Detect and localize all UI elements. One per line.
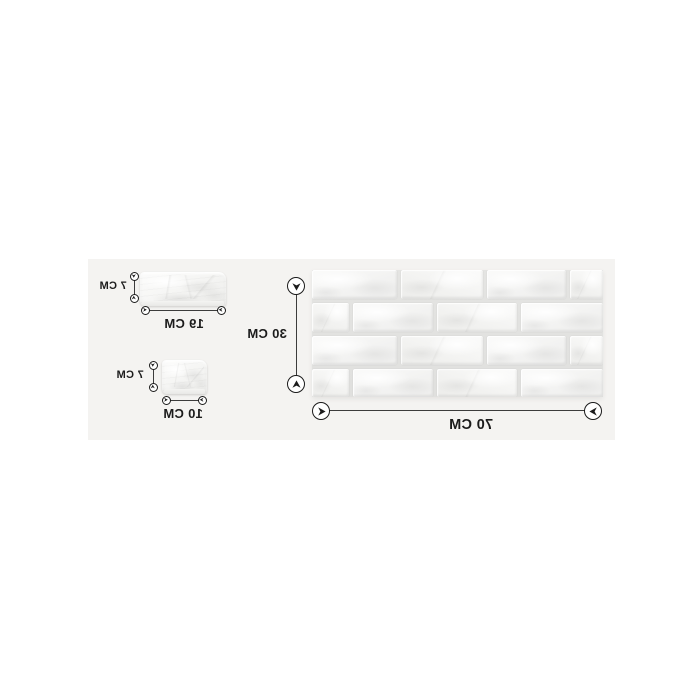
arrow-left-circle-icon <box>584 402 602 420</box>
arrow-down-circle-icon <box>130 272 139 281</box>
brick <box>312 336 397 365</box>
brick <box>487 270 566 299</box>
width-dimension-label: 19 CM <box>161 317 207 330</box>
height-dimension-label: 30 CM <box>246 327 288 340</box>
brick <box>401 336 483 365</box>
arrow-down-circle-icon <box>287 277 305 295</box>
brick <box>401 270 483 299</box>
arrow-up-circle-icon <box>130 294 139 303</box>
dimension-line-width-panel <box>321 410 593 411</box>
brick <box>437 369 517 397</box>
height-dimension-label: 7 CM <box>112 370 148 381</box>
dimension-line-width-19cm <box>145 310 221 311</box>
brick <box>521 303 603 332</box>
brick-sample-10cm <box>162 360 207 394</box>
arrow-right-circle-icon <box>312 402 330 420</box>
brick <box>312 303 349 332</box>
arrow-up-circle-icon <box>149 383 158 392</box>
arrow-left-circle-icon <box>198 396 207 405</box>
brick <box>521 369 603 397</box>
width-dimension-label: 70 CM <box>441 418 501 433</box>
brick-panel <box>312 270 603 397</box>
product-image-canvas: 7 CM 19 CM 7 CM 10 CM 30 CM 70 CM <box>0 0 700 700</box>
brick-sample-19cm <box>140 272 226 306</box>
brick <box>353 369 433 397</box>
brick <box>437 303 517 332</box>
brick <box>312 369 349 397</box>
height-dimension-label: 7 CM <box>95 281 131 292</box>
arrow-right-circle-icon <box>141 306 150 315</box>
dimension-line-width-10cm <box>166 400 202 401</box>
arrow-right-circle-icon <box>162 396 171 405</box>
arrow-left-circle-icon <box>217 306 226 315</box>
brick <box>570 270 603 299</box>
arrow-up-circle-icon <box>287 375 305 393</box>
dimension-line-height-panel <box>296 286 297 384</box>
brick <box>353 303 433 332</box>
arrow-down-circle-icon <box>149 361 158 370</box>
brick <box>570 336 603 365</box>
brick <box>487 336 566 365</box>
width-dimension-label: 10 CM <box>160 407 206 420</box>
brick <box>312 270 397 299</box>
